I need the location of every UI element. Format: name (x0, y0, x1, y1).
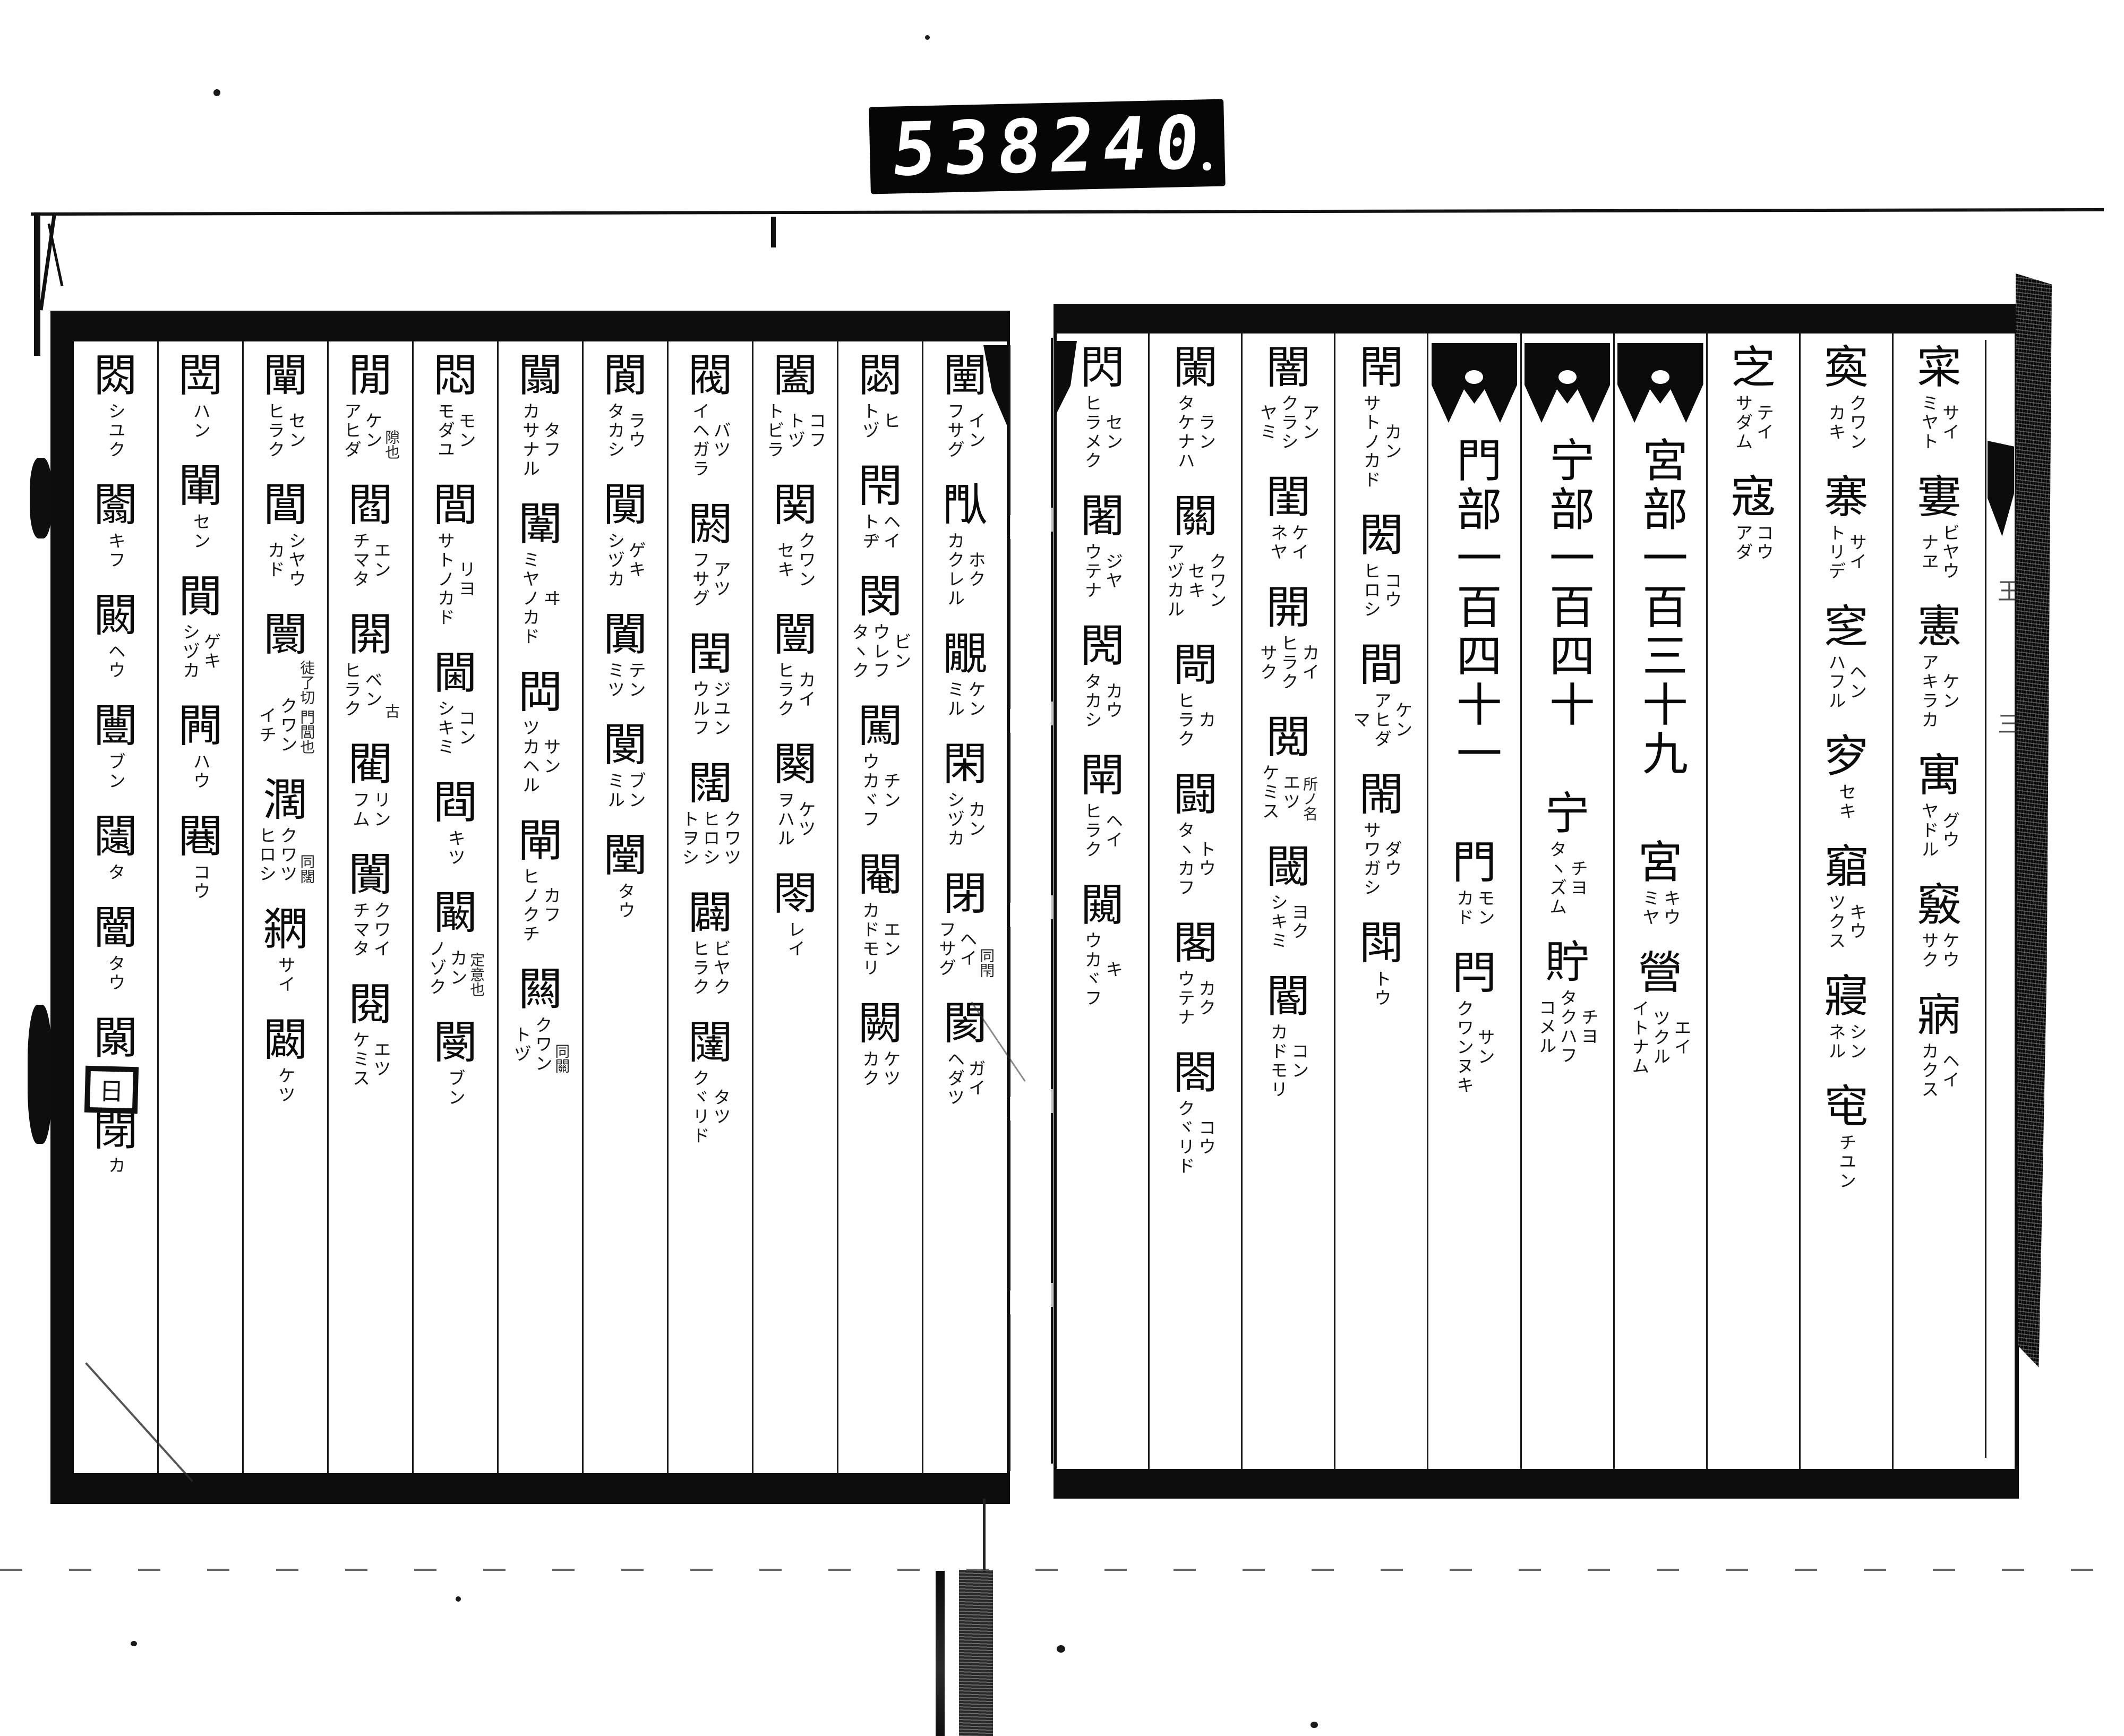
entry-kanji: 閴 (159, 574, 242, 619)
ink-speck (925, 35, 930, 40)
entry-reading: クワイ (371, 901, 392, 959)
entry-reading: ヒラク (774, 661, 795, 719)
column-entries: 寏クワンカキ寨サイトリデ窆ヘンハフル穸セキ竆キウツクス寢シンネル窀チユン (1801, 342, 1892, 1211)
entry-readings: エンチマタ (349, 532, 391, 589)
dict-entry: 寇コウアダ (1708, 475, 1799, 564)
entry-reading: ケツ (795, 791, 817, 848)
spine-shadow-streak (936, 1571, 945, 1736)
entry-reading: フサグ (689, 551, 710, 608)
entry-reading: カン (1381, 394, 1402, 490)
entry-reading: グウ (1939, 802, 1960, 859)
entry-reading: カウ (1102, 672, 1124, 730)
entry-kanji: 閝 (753, 871, 837, 916)
entry-readings: ゲキシヅカ (604, 532, 646, 589)
entry-kanji: 闊 (669, 761, 752, 806)
entry-reading: モダユ (434, 402, 456, 459)
entry-reading: リヨ (456, 532, 477, 627)
entry-readings: コフトヅトビラ (764, 402, 827, 459)
entry-kanji: 闖 (838, 704, 922, 748)
dict-column: 闌ランタケナハ關クワンセキアヅカル閜カヒラク闘トウタヽカフ閣カクウテナ閤コウクヾ… (1148, 333, 1241, 1469)
entry-kanji: 閎 (1335, 513, 1427, 558)
entry-kanji: 閽 (1243, 974, 1334, 1019)
entry-kanji: 閵 (329, 742, 412, 786)
entry-reading: アダ (1732, 524, 1753, 562)
dict-entry: 閥バツイヘガラ (669, 353, 752, 481)
entry-kanji: 閣 (1150, 921, 1241, 965)
entry-reading: イチ (256, 697, 277, 754)
entry-reading: ハフル (1825, 653, 1846, 711)
page-left: 闉インフサグ閄ホクカクレル覵ケンミル閑カンシヅカ閉ヘイフサグ同閇閡ガイヘダツ閟ヒ… (50, 311, 1010, 1504)
entry-readings: コンシキミ (434, 699, 476, 757)
dict-entry: 闣タウ (74, 905, 157, 995)
entry-readings: ジヤウテナ (1082, 543, 1124, 600)
entry-reading: フサグ (936, 920, 957, 978)
dict-entry: 閄ホクカクレル (923, 483, 1007, 610)
entry-kanji: 闧 (74, 814, 157, 859)
dict-column: 閃センヒラメク闍ジヤウテナ閌カウタカシ閛ヘイヒラク闚キウカヾフ (1057, 333, 1148, 1469)
entry-reading: カド (264, 532, 286, 589)
entry-reading: ゲキ (626, 532, 647, 589)
dict-entry: 開カイヒラクサク (1243, 585, 1334, 694)
dict-column: 閒ケンアヒダ隙也閻エンチマタ閞ベンヒラク古閵リンフム闠クワイチマタ閱エツケミス (327, 341, 412, 1473)
entry-reading: セキ (1185, 543, 1206, 619)
dict-entry: 閙ダウサワガシ (1335, 772, 1427, 900)
dict-column: 寀サイミヤト寠ビヤウナヱ憲ケンアキラカ寓グウヤドル竅ケウサク寎ヘイカクス (1892, 333, 1985, 1469)
dict-entry: 寨サイトリデ (1801, 475, 1892, 583)
entry-readings: カンサトノカド (1360, 394, 1402, 490)
entry-reading: コウ (190, 863, 211, 901)
entry-readings: カ (105, 1156, 126, 1175)
entry-readings: ケツカク (859, 1050, 901, 1088)
entry-reading: タカシ (604, 402, 626, 459)
dict-column: 宮部一百三十九宮キウミヤ營エイツクルイトナム (1613, 333, 1706, 1469)
entry-reading: キツ (445, 829, 466, 867)
dict-entry: 闟キフ (74, 483, 157, 572)
entry-reading: トヂ (859, 512, 880, 551)
entry-kanji: 閕 (74, 1107, 157, 1152)
edge-wear-mark (34, 212, 40, 356)
entry-reading: ブン (105, 752, 126, 791)
entry-kanji: 閼 (669, 502, 752, 546)
entry-kanji: 閟 (838, 353, 922, 398)
dict-entry: 寎ヘイカクス (1894, 993, 1985, 1101)
entry-reading: ケツ (275, 1066, 296, 1105)
dict-entry: 闇アンクラシヤミ (1243, 345, 1334, 454)
entry-kanji: 憲 (1894, 604, 1985, 649)
section-ornament (1525, 343, 1611, 423)
dict-entry: 閼アツフサグ (669, 502, 752, 610)
entry-kanji: 闓 (753, 612, 837, 657)
dict-entry: 窆ヘンハフル (1801, 604, 1892, 713)
entry-kanji: 闡 (244, 353, 327, 398)
entry-readings: チンウカヾフ (859, 752, 901, 829)
entry-reading: サク (1918, 931, 1939, 970)
entry-readings: カンノゾク (426, 939, 468, 997)
scanned-document: { "counter": { "digits_left": "538", "di… (0, 0, 2124, 1736)
entry-readings: コウ (190, 863, 211, 901)
dict-column: 闇アンクラシヤミ閨ケイネヤ開カイヒラクサク閲エツケミス所ノ名閾ヨクシキミ閽コンカ… (1241, 333, 1334, 1469)
dict-entry: 宁チヨタヽズム (1522, 791, 1613, 919)
dict-entry: 閬ラウタカシ (584, 353, 667, 461)
dict-entry: 間ケンアヒダマ (1335, 643, 1427, 751)
entry-reading: ミヤト (1918, 394, 1939, 451)
dict-entry: 閦シユク (74, 353, 157, 461)
entry-readings: ヘウ (105, 642, 126, 680)
entry-reading: サク (1257, 634, 1278, 691)
entry-kanji: 覵 (923, 631, 1007, 676)
entry-reading: シン (1846, 1023, 1868, 1061)
entry-kanji: 闗 (499, 967, 582, 1012)
entry-kanji: 貯 (1522, 940, 1613, 985)
entry-readings: ビンウレフタヽク (849, 623, 912, 680)
entry-readings: アツフサグ (689, 551, 731, 608)
column-entries: 闇アンクラシヤミ閨ケイネヤ開カイヒラクサク閲エツケミス所ノ名閾ヨクシキミ閽コンカ… (1243, 342, 1334, 1119)
entry-reading: セン (286, 402, 307, 459)
edge-wear-blob (30, 458, 52, 538)
entry-readings: リヨサトノカド (434, 532, 476, 627)
column-entries: 闌ランタケナハ關クワンセキアヅカル閜カヒラク闘トウタヽカフ閣カクウテナ閤コウクヾ… (1150, 342, 1241, 1196)
dict-entry: 閣カクウテナ (1150, 921, 1241, 1029)
dict-entry: 閞ベンヒラク古 (329, 612, 412, 721)
entry-readings: コウヒロシ (1360, 562, 1402, 619)
entry-kanji: 閏 (669, 631, 752, 676)
dict-entry: 窀チユン (1801, 1084, 1892, 1193)
dict-entry: 闢ビヤクヒラク (669, 891, 752, 999)
entry-kanji: 闇 (1243, 345, 1334, 390)
entry-reading: タヽズム (1546, 840, 1568, 917)
entry-reading: クワン (1206, 543, 1227, 619)
entry-reading: バツ (710, 402, 732, 478)
entry-readings: タツクヾリド (689, 1069, 731, 1145)
dict-entry: 閲エツケミス所ノ名 (1243, 715, 1334, 823)
entry-reading: キ (1102, 931, 1124, 1008)
dict-column: 闔コフトヅトビラ関クワンセキ闓カイヒラク闋ケツヲハル閝レイ (752, 341, 837, 1473)
dict-entry: 閟ヒトヅ (838, 353, 922, 442)
entry-reading: タフ (541, 402, 562, 478)
dict-entry: 闓カイヒラク (753, 612, 837, 721)
dict-entry: 閝レイ (753, 871, 837, 961)
entry-reading: トビラ (764, 402, 785, 459)
entry-reading: ヘイ (1102, 802, 1124, 859)
dict-entry: 閇ヘイトヂ (838, 464, 922, 553)
entry-kanji: 閫 (414, 651, 497, 695)
dict-column: 悶モンモダユ閭リヨサトノカド閫コンシキミ閰キツ闞カンノゾク定意也閿ブン (412, 341, 497, 1473)
entry-reading: ビヤウ (1939, 524, 1960, 581)
entry-reading: サイ (1846, 524, 1868, 581)
entry-readings: モンカド (1453, 889, 1495, 927)
entry-kanji: 窀 (1801, 1084, 1892, 1129)
entry-readings: セキ (1836, 783, 1857, 821)
dict-column: 門部一百四十一門モンカド閂サンクワンヌキ (1427, 333, 1520, 1469)
dict-entry: 營エイツクルイトナム (1615, 951, 1706, 1078)
entry-readings: トウタヽカフ (1175, 821, 1217, 897)
entry-readings: キウツクス (1825, 893, 1867, 951)
book-edge-ragged-strip (2016, 273, 2052, 1367)
gutter-line-right (1051, 338, 1053, 1464)
dict-entry: 閫コンシキミ (414, 651, 497, 759)
dict-entry: 㝎テイサダム (1708, 345, 1799, 454)
entry-reading: ミル (944, 680, 965, 719)
entry-readings: ヘンハフル (1825, 653, 1867, 711)
entry-readings: クワンセキアヅカル (1164, 543, 1227, 619)
entry-reading: サン (541, 719, 562, 795)
entry-reading: カイ (795, 661, 817, 719)
dict-entry: 閭リヨサトノカド (414, 483, 497, 629)
dict-entry: 闌ランタケナハ (1150, 345, 1241, 473)
entry-reading: タウ (615, 882, 636, 920)
dict-entry: 閈カンサトノカド (1335, 345, 1427, 492)
entry-kanji: 闠 (329, 852, 412, 897)
entry-readings: クワイチマタ (349, 901, 391, 959)
entry-reading: ヒロシ (700, 810, 721, 867)
entry-readings: コウアダ (1732, 524, 1774, 562)
scan-top-rule (31, 208, 2104, 216)
section-ornament (1432, 343, 1518, 423)
dict-entry: 閉ヘイフサグ同閇 (923, 871, 1007, 980)
entry-reading: ケン (965, 680, 987, 719)
column-entries: 闒タフカサナル闈ヰミヤノカド閊サンツカヘル閘カフヒノクチ闗クワントヅ同關 (499, 350, 582, 1093)
dict-entry: 闥タツクヾリド (669, 1020, 752, 1148)
dict-entry: 閾ヨクシキミ (1243, 844, 1334, 953)
dict-entry: 闙ケツ (244, 1017, 327, 1107)
column-entries: 閟ヒトヅ閇ヘイトヂ閔ビンウレフタヽク闖チンウカヾフ閹エンカドモリ闕ケツカク (838, 350, 922, 1108)
entry-reading: ヘン (1846, 653, 1868, 711)
dict-entry: 寓グウヤドル (1894, 753, 1985, 861)
entry-readings: サイ (275, 956, 296, 994)
entry-readings: カイヒラク (774, 661, 816, 719)
spine-thread-line (983, 1499, 986, 1572)
entry-reading: セン (1102, 394, 1124, 471)
column-entries: 門モンカド閂サンクワンヌキ (1428, 837, 1520, 1115)
entry-readings: クワツヒロシトヲシ (679, 810, 742, 867)
entry-kanji: 閷 (244, 907, 327, 952)
dict-entry: 閳セン (159, 464, 242, 553)
entry-reading: タケナハ (1175, 394, 1196, 471)
entry-reading: タヽク (849, 623, 870, 680)
entry-kanji: 閄 (923, 483, 1007, 527)
entry-kanji: 闙 (244, 1017, 327, 1062)
entry-readings: セン (190, 512, 211, 551)
column-entries: 閥バツイヘガラ閼アツフサグ閏ジユンウルフ闊クワツヒロシトヲシ闢ビヤクヒラク闥タツ… (669, 350, 752, 1166)
entry-readings: ケンミル (944, 680, 986, 719)
entry-readings: エイツクルイトナム (1629, 999, 1692, 1076)
entry-reading: ハウ (190, 752, 211, 791)
entry-reading: ウルフ (689, 680, 710, 738)
entry-readings: インフサグ (944, 402, 986, 459)
ink-speck (771, 217, 776, 247)
entry-kanji: 闋 (753, 742, 837, 786)
dict-entry: 闦ブン (74, 704, 157, 793)
entry-readings: ヘイカクス (1918, 1042, 1960, 1099)
entry-reading: クワン (1846, 394, 1868, 451)
entry-readings: ケツヲハル (774, 791, 816, 848)
entry-reading: チン (880, 752, 902, 829)
ornament-dot (1558, 370, 1577, 384)
entry-reading: レイ (785, 920, 806, 959)
dict-entry: 竅ケウサク (1894, 883, 1985, 972)
entry-reading: カクス (1918, 1042, 1939, 1099)
entry-reading: ヘイ (956, 920, 978, 978)
entry-reading: ヒノクチ (519, 867, 541, 944)
entry-reading: ジユン (710, 680, 732, 738)
previous-leaf-edge: 王 三 (1985, 340, 2016, 1458)
dict-column: 閦シユク闟キフ闝ヘウ闦ブン闧タ闣タウ闎フ閕カ (74, 341, 157, 1473)
entry-kanji: 閬 (584, 353, 667, 398)
entry-kanji: 闌 (1150, 345, 1241, 390)
right-page-columns: 寀サイミヤト寠ビヤウナヱ憲ケンアキラカ寓グウヤドル竅ケウサク寎ヘイカクス寏クワン… (1057, 333, 2015, 1469)
dict-entry: 憲ケンアキラカ (1894, 604, 1985, 732)
entry-kanji: 闞 (414, 891, 497, 935)
dict-entry: 閿ブン (414, 1020, 497, 1109)
entry-kanji: 閰 (414, 780, 497, 825)
entry-reading: トヅ (785, 402, 806, 459)
entry-reading: ヤドル (1918, 802, 1939, 859)
entry-reading: ダウ (1381, 821, 1402, 897)
entry-kanji: 闔 (753, 353, 837, 398)
dict-column: 闒タフカサナル闈ヰミヤノカド閊サンツカヘル閘カフヒノクチ闗クワントヅ同關 (497, 341, 582, 1473)
dict-entry: 闍ジヤウテナ (1057, 494, 1148, 602)
entry-kanji: 閌 (1057, 623, 1148, 668)
left-margin-box-mark: 日 (84, 1066, 139, 1114)
dict-entry: 濶クワツヒロシ同闊 (244, 777, 327, 886)
entry-reading: ブン (445, 1069, 466, 1107)
section-ornament (1617, 343, 1703, 423)
dict-entry: 闖チンウカヾフ (838, 704, 922, 831)
entry-readings: チヨタヽズム (1546, 840, 1588, 917)
entry-reading: ヒラク (1082, 802, 1103, 859)
dict-entry: 闃ゲキシヅカ (584, 483, 667, 591)
ink-speck (213, 89, 220, 96)
entry-reading: チユン (1836, 1133, 1857, 1191)
counter-digits-left: 538 (888, 110, 1054, 187)
counter-dot (1203, 162, 1211, 170)
entry-readings: リンフム (349, 791, 391, 829)
entry-kanji: 闈 (499, 502, 582, 546)
dict-entry: 閰キツ (414, 780, 497, 869)
entry-kanji: 寏 (1801, 345, 1892, 390)
dict-entry: 閕カ (74, 1107, 157, 1177)
entry-kanji: 寢 (1801, 974, 1892, 1019)
entry-reading: イヘガラ (689, 402, 710, 478)
entry-kanji: 關 (1150, 494, 1241, 538)
column-entries: 寀サイミヤト寠ビヤウナヱ憲ケンアキラカ寓グウヤドル竅ケウサク寎ヘイカクス (1894, 342, 1985, 1119)
entry-reading: ネヤ (1267, 524, 1289, 562)
entry-readings: シヤウカド (264, 532, 306, 589)
section-title: 門部一百四十一 (1451, 437, 1498, 779)
entry-reading: ビン (890, 623, 912, 680)
entry-reading: トヅ (511, 1016, 532, 1073)
dict-entry: 寀サイミヤト (1894, 345, 1985, 454)
dict-entry: 關クワンセキアヅカル (1150, 494, 1241, 621)
entry-kanji: 闤 (244, 612, 327, 657)
dict-entry: 闈ヰミヤノカド (499, 502, 582, 648)
entry-reading: ネル (1825, 1023, 1846, 1061)
entry-kanji: 閭 (414, 483, 497, 527)
dict-entry: 閶シヤウカド (244, 483, 327, 591)
entry-kanji: 閗 (1335, 921, 1427, 965)
entry-kanji: 悶 (414, 353, 497, 398)
entry-readings: コウクヾリド (1175, 1099, 1217, 1176)
entry-readings: ヨクシキミ (1267, 893, 1309, 951)
entry-readings: キフ (105, 532, 126, 570)
entry-reading: ケミス (349, 1031, 371, 1088)
entry-reading: サワガシ (1360, 821, 1382, 897)
entry-readings: サンクワンヌキ (1453, 999, 1495, 1095)
entry-reading: カ (105, 1156, 126, 1175)
entry-kanji: 闘 (1150, 772, 1241, 817)
entry-kanji: 闚 (1057, 883, 1148, 927)
dict-entry: 覵ケンミル (923, 631, 1007, 721)
entry-reading: クワン (532, 1016, 553, 1073)
entry-reading: ヒラク (341, 661, 362, 719)
entry-reading: ガイ (965, 1050, 987, 1107)
entry-reading: サイ (275, 956, 296, 994)
dict-entry: 閱エツケミス (329, 982, 412, 1090)
entry-reading: エン (880, 901, 902, 978)
ink-speck (1311, 1722, 1318, 1728)
entry-kanji: 閙 (1335, 772, 1427, 817)
dict-entry: 闠クワイチマタ (329, 852, 412, 961)
entry-reading: ラウ (626, 402, 647, 459)
entry-kanji: 寎 (1894, 993, 1985, 1038)
entry-readings: カイヒラクサク (1257, 634, 1320, 691)
dict-column: 閚ハン閳セン閴ゲキシヅカ闁ハウ闀コウ (157, 341, 242, 1473)
entry-readings: バツイヘガラ (689, 402, 731, 478)
entry-readings: タフカサナル (519, 402, 561, 478)
entry-reading: サン (1474, 999, 1495, 1095)
entry-kanji: 閲 (1243, 715, 1334, 759)
entry-reading: ツクル (1650, 999, 1671, 1076)
entry-reading: タツ (710, 1069, 732, 1145)
dict-entry: 閏ジユンウルフ (669, 631, 752, 740)
entry-reading: ヒラク (689, 939, 710, 997)
entry-reading: シキミ (1267, 893, 1289, 951)
entry-kanji: 閥 (669, 353, 752, 398)
entry-reading: ヤミ (1257, 394, 1278, 451)
edge-ornament-fragment (1988, 441, 2014, 536)
entry-kanji: 閻 (329, 483, 412, 527)
entry-reading: チヨ (1568, 840, 1589, 917)
entry-reading: マ (1350, 691, 1371, 749)
dict-entry: 寢シンネル (1801, 974, 1892, 1063)
entry-kanji: 間 (1335, 643, 1427, 687)
entry-reading: ケミス (1259, 764, 1280, 821)
entry-reading: フム (349, 791, 371, 829)
entry-readings: ブン (105, 752, 126, 791)
entry-reading: シヅカ (944, 791, 965, 848)
entry-kanji: 閶 (244, 483, 327, 527)
entry-reading: キウ (1660, 889, 1682, 927)
entry-readings: ケンアヒダマ (1350, 691, 1413, 749)
section-title: 宮部一百三十九 (1637, 437, 1684, 779)
entry-readings: ビヤウナヱ (1918, 524, 1960, 581)
entry-kanji: 閜 (1150, 643, 1241, 687)
entry-readings: ヰミヤノカド (519, 551, 561, 646)
entry-kanji: 閇 (838, 464, 922, 508)
entry-kanji: 閿 (414, 1020, 497, 1065)
entry-readings: カウタカシ (1082, 672, 1124, 730)
column-entries: 闔コフトヅトビラ関クワンセキ闓カイヒラク闋ケツヲハル閝レイ (753, 350, 837, 979)
entry-readings: タウ (105, 954, 126, 993)
edge-wear-blob (28, 1005, 52, 1144)
entry-reading: ヒロシ (1360, 562, 1382, 619)
dict-entry: 闚キウカヾフ (1057, 883, 1148, 1010)
entry-readings: クワンカキ (1825, 394, 1867, 451)
dict-column: 閥バツイヘガラ閼アツフサグ閏ジユンウルフ闊クワツヒロシトヲシ闢ビヤクヒラク闥タツ… (667, 341, 752, 1473)
dict-entry: 閴ゲキシヅカ (159, 574, 242, 682)
entry-reading: セキ (774, 532, 795, 589)
entry-reading: ナヱ (1918, 524, 1939, 581)
